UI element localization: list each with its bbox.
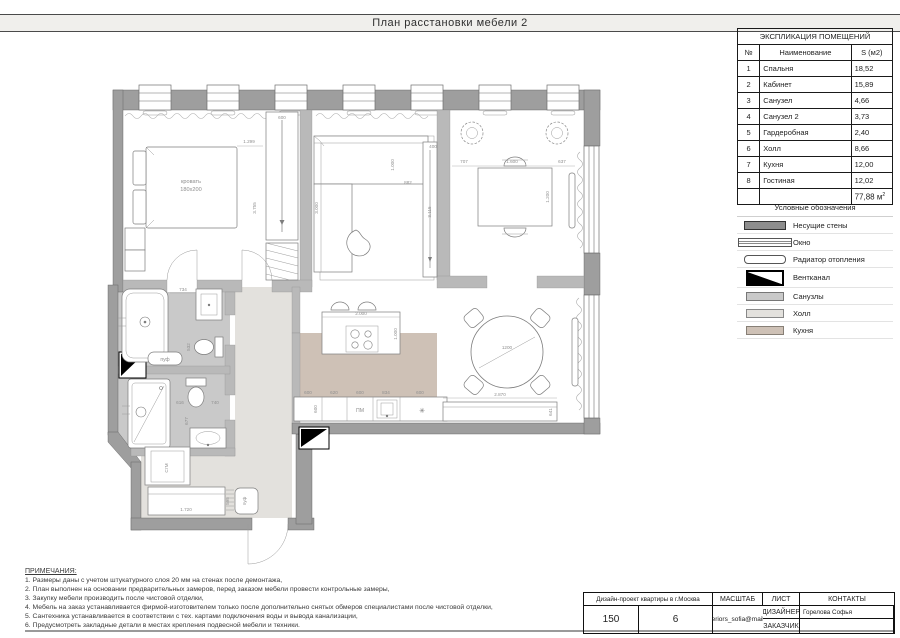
svg-text:3.115: 3.115 [427,206,432,218]
svg-text:1200: 1200 [502,345,513,350]
svg-text:2.000: 2.000 [355,311,367,316]
corner-sofa [314,136,428,272]
washer-closet: СтМ [145,447,190,485]
nightstand [125,250,145,271]
designer-label: ДИЗАЙНЕР [763,606,800,619]
col-header-area: S (м2) [851,45,892,61]
dining-table: 1200 [471,316,543,388]
svg-text:1.600: 1.600 [506,159,518,164]
dining-area: 1200 2.870 641 [443,307,578,421]
console: 2.870 641 [443,392,557,421]
svg-text:1.000: 1.000 [393,328,398,340]
svg-text:СтМ: СтМ [164,463,169,472]
office-chair [502,228,528,237]
wall-swatch-icon [744,221,786,230]
bath-swatch-icon [746,292,784,301]
note-line: 3. Закупку мебели производить после чист… [25,594,585,603]
table-row: 8Гостиная12,02 [738,173,893,189]
svg-text:532: 532 [186,343,191,351]
bed: кровать 180х200 [133,147,237,228]
svg-text:600: 600 [416,390,424,395]
svg-text:740: 740 [211,400,219,405]
client-label: ЗАКАЗЧИК [763,619,800,633]
note-line: 4. Мебель на заказ устанавливается фирмо… [25,603,585,612]
svg-text:1.299: 1.299 [243,139,255,144]
window-icon [139,85,171,115]
svg-text:600: 600 [304,390,312,395]
legend-item: Вентканал [737,268,893,288]
door-arc [167,250,197,280]
title-block: Дизайн-проект квартиры в г.Москва МАСШТА… [583,592,895,634]
plant-icon [546,122,568,144]
legend-title: Условные обозначения [737,200,893,217]
radiator-icon [569,173,575,228]
explication-table: ЭКСПЛИКАЦИЯ ПОМЕЩЕНИЙ № Наименование S (… [737,28,893,205]
svg-text:1.000: 1.000 [390,159,395,171]
bathtub [118,289,168,362]
scale-value: 150 [584,606,639,633]
project-name: Дизайн-проект квартиры в г.Москва [584,593,713,606]
note-line: 6. Предусмотреть закладные детали в мест… [25,621,585,630]
window-icon [584,146,599,253]
svg-text:641: 641 [548,408,553,416]
hob-icon: ✳ [419,407,425,415]
svg-text:707: 707 [460,159,468,164]
sofa-room: 3.000 1.000 882 400 3.115 [314,136,437,280]
table-row: 6Холл8,66 [738,141,893,157]
table-row: 2Кабинет15,89 [738,77,893,93]
svg-text:882: 882 [404,180,412,185]
svg-text:600: 600 [278,115,286,120]
note-line: 5. Сантехника устанавливается в соответс… [25,612,585,621]
svg-text:616: 616 [176,400,184,405]
table-row: 5Гардеробная2,40 [738,125,893,141]
radiator-icon [572,318,578,386]
contacts-email: interiors_sofia@mail.ru [713,606,763,633]
svg-text:620: 620 [330,390,338,395]
kitchen-swatch-icon [746,326,784,335]
kitchen-island: 2.000 1.000 [322,311,400,354]
sheet-number: 6 [639,606,713,633]
bedroom: кровать 180х200 1.299 3.755 600 [125,112,298,280]
note-line: 2. План выполнен на основании предварите… [25,585,585,594]
svg-text:600: 600 [356,390,364,395]
hall-floor-corridor [235,287,292,518]
window-icon [584,295,599,418]
svg-text:734: 734 [179,287,187,292]
svg-text:3.755: 3.755 [252,202,257,214]
table-row: 3Санузел4,66 [738,93,893,109]
shower-tray [122,379,170,448]
window-icon [343,85,375,115]
legend-item: Кухня [737,322,893,339]
hall-swatch-icon [746,309,784,318]
bar-stool [331,302,349,310]
nightstand [125,228,145,250]
toilet-icon [186,378,206,407]
svg-text:пуф: пуф [242,497,247,506]
explication-title: ЭКСПЛИКАЦИЯ ПОМЕЩЕНИЙ [738,29,893,45]
radiator-swatch-icon [744,255,786,264]
col-header-name: Наименование [760,45,851,61]
notes-title: ПРИМЕЧАНИЯ: [25,567,585,576]
legend-item: Окно [737,234,893,251]
svg-text:2.870: 2.870 [494,392,506,397]
svg-text:1.200: 1.200 [545,191,550,203]
legend: Условные обозначения Несущие стены Окно … [737,200,893,339]
svg-text:677: 677 [184,417,189,425]
table-row: 7Кухня12,00 [738,157,893,173]
notes: ПРИМЕЧАНИЯ: 1. Размеры даны с учетом шту… [25,567,585,630]
table-row: 1Спальня18,52 [738,61,893,77]
svg-text:ПМ: ПМ [356,408,364,414]
window-icon [479,85,511,115]
bean-chair [347,230,370,256]
window-icon [207,85,239,115]
entrance-door [248,524,288,564]
designer-name: Горелова Софья [800,606,894,619]
legend-item: Радиатор отопления [737,251,893,268]
plant-icon [461,122,483,144]
svg-text:637: 637 [558,159,566,164]
vent-swatch-icon [746,270,784,286]
drawing-sheet: План расстановки мебели 2 [0,0,900,638]
bath-sink [196,289,222,320]
client-name [800,619,894,633]
vent-channel-icon [299,427,329,449]
svg-text:1.720: 1.720 [180,507,192,512]
svg-text:400: 400 [429,144,437,149]
svg-text:180х200: 180х200 [180,187,201,193]
bath2-sink [190,428,226,448]
svg-text:пуф: пуф [160,357,169,363]
hall-cabinet: 1.720 595 [148,487,230,515]
legend-item: Санузлы [737,288,893,305]
wardrobe: 600 [266,112,298,240]
svg-text:кровать: кровать [181,179,201,185]
window-swatch-icon [738,238,792,247]
window-icon [547,85,579,115]
svg-text:834: 834 [382,390,390,395]
sheet-label: ЛИСТ [763,593,800,606]
svg-text:600: 600 [313,405,318,413]
col-header-num: № [738,45,760,61]
note-line: 1. Размеры даны с учетом штукатурного сл… [25,576,585,585]
scale-label: МАСШТАБ [713,593,763,606]
closet-hatch [266,243,298,280]
legend-item: Холл [737,305,893,322]
pouf: пуф [148,352,182,365]
bar-stool [358,302,376,310]
contacts-label: КОНТАКТЫ [800,593,894,606]
table-row: 4Санузел 23,73 [738,109,893,125]
legend-item: Несущие стены [737,217,893,234]
svg-text:3.000: 3.000 [314,202,319,214]
shelf-unit: 400 3.115 [423,142,437,277]
office: 707 1.600 637 1.200 [452,122,575,237]
desk [478,168,552,226]
